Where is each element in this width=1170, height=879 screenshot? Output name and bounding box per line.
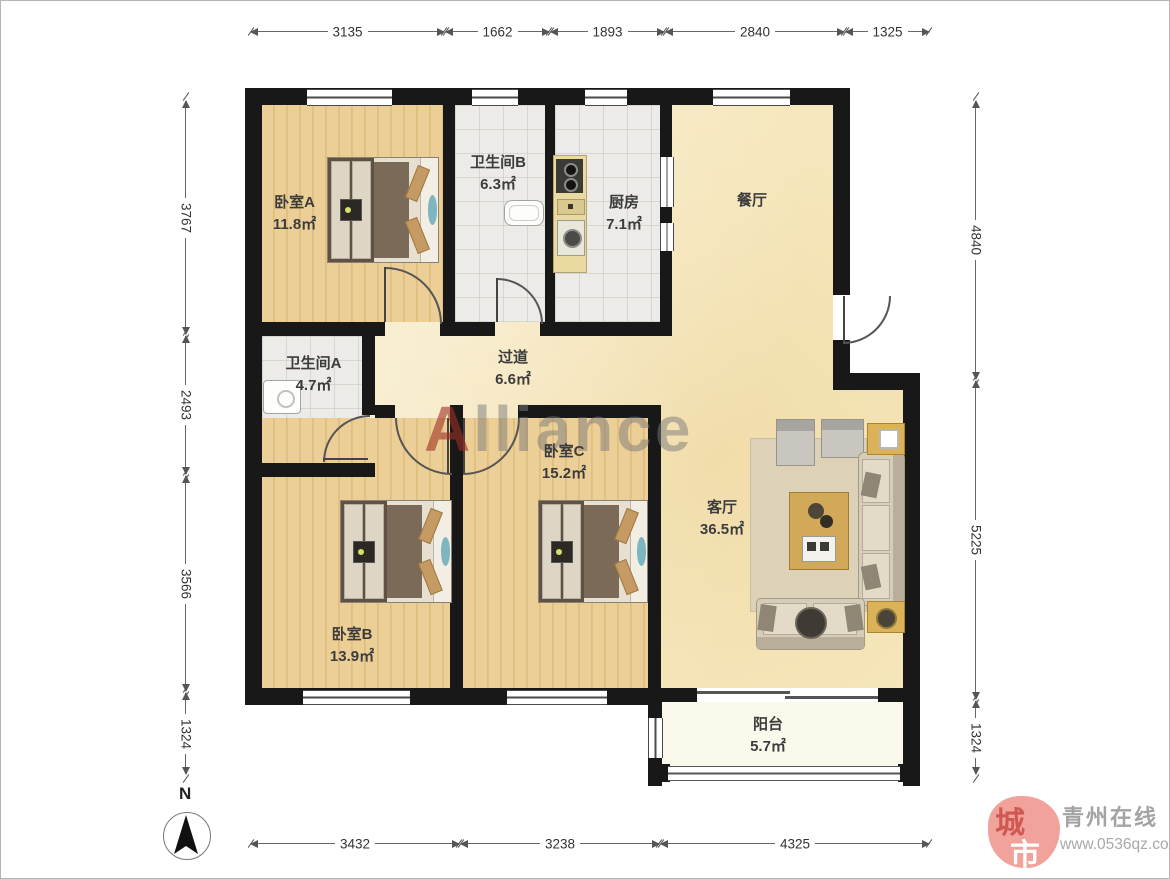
dim-left-2: 2493: [178, 335, 194, 475]
dining-label: 餐厅: [716, 190, 788, 212]
stove-icon: [556, 159, 583, 193]
north-arrow-icon: [164, 813, 208, 857]
window-kitchen: [585, 89, 627, 106]
tv-icon: [353, 541, 375, 563]
bed-mattress: [374, 158, 438, 262]
wall-bedroomB-top-stub: [375, 405, 395, 418]
dim-bottom-3: 4325: [660, 836, 930, 852]
bedroom-a-door-leaf: [384, 267, 386, 322]
window-bedroom-a: [307, 89, 392, 106]
kitchen-slider-glass-1: [660, 157, 674, 207]
compass-circle: [163, 812, 211, 860]
watermark-first-letter: A: [424, 393, 473, 465]
sink-icon: [557, 220, 585, 256]
dim-left-3: 3566: [178, 475, 194, 692]
bathroom-a-door-leaf: [323, 458, 368, 460]
bedroom-a-label: 卧室A11.8㎡: [252, 192, 337, 236]
kitchen-counter: [553, 155, 587, 273]
sofa-main: [858, 452, 905, 606]
coffee-table: [789, 492, 849, 570]
dim-top-4: 2840: [665, 24, 845, 40]
dim-top-3: 1893: [550, 24, 665, 40]
wall-hall-3: [540, 322, 672, 336]
cutting-board: [557, 199, 585, 215]
dim-bottom-1: 3432: [250, 836, 460, 852]
hallway-label: 过道6.6㎡: [478, 347, 548, 391]
floorplan-canvas: 卧室A11.8㎡ 卫生间B6.3㎡ 厨房7.1㎡ 餐厅 卫生间A4.7㎡ 过道6…: [0, 0, 1170, 879]
bathroom-b-tub: [504, 200, 544, 226]
dim-left-4: 1324: [178, 692, 194, 775]
bathroom-a-label: 卫生间A4.7㎡: [266, 353, 361, 397]
wall-kitchen-dining-top: [660, 105, 672, 157]
dim-top-5: 1325: [845, 24, 930, 40]
living-label: 客厅36.5㎡: [682, 497, 762, 541]
dim-top-2: 1662: [445, 24, 550, 40]
wall-right-lower: [903, 373, 920, 786]
wall-balcony-left-top: [648, 702, 662, 718]
loveseat: [756, 598, 865, 650]
bathroom-b-door-leaf: [496, 278, 498, 322]
lamp-icon: [879, 429, 899, 449]
window-bathroom-b: [472, 89, 518, 106]
site-name: 青州在线: [1062, 800, 1158, 832]
dim-right-2: 5225: [968, 380, 984, 700]
wall-balcony-corner-left: [648, 764, 670, 782]
balcony-slider-panel-1: [697, 691, 790, 694]
window-dining: [713, 89, 790, 106]
side-table-plant: [867, 601, 905, 633]
wall-bathroomA-bottom: [245, 463, 375, 477]
window-balcony-left: [648, 718, 663, 758]
bed-mattress: [584, 501, 647, 602]
wall-right-upper: [833, 88, 850, 295]
dim-right-3: 1324: [968, 700, 984, 775]
wall-balcony-top-right: [878, 688, 908, 702]
wardrobe: [539, 501, 584, 602]
tv-icon: [340, 199, 362, 221]
armchair-1: [776, 419, 815, 466]
armchair-2: [821, 419, 864, 458]
entry-door-leaf: [843, 296, 845, 342]
site-seal-icon: 城 市: [988, 796, 1060, 868]
side-table-lamp: [867, 423, 905, 455]
bedroom-c-bed: [538, 500, 648, 603]
plant-icon: [876, 608, 897, 629]
tv-icon: [551, 541, 573, 563]
seal-char-bottom: 市: [1010, 830, 1040, 874]
round-ottoman: [795, 607, 827, 639]
wardrobe: [341, 501, 387, 602]
site-url: www.0536qz.com: [1060, 836, 1170, 854]
kitchen-slider-glass-2: [660, 223, 674, 251]
wall-bathroomA-right: [362, 322, 375, 415]
bedroom-b-label: 卧室B13.9㎡: [312, 624, 392, 668]
bedroom-b-bed: [340, 500, 452, 603]
dim-bottom-2: 3238: [460, 836, 660, 852]
compass-north-label: N: [179, 784, 191, 804]
bed-mattress: [387, 501, 451, 602]
wall-hall-2: [440, 322, 495, 336]
wall-balcony-corner-right: [898, 764, 920, 782]
bedroom-a-bed: [327, 157, 439, 263]
dim-right-1: 4840: [968, 100, 984, 380]
bathroom-b-label: 卫生间B6.3㎡: [452, 152, 544, 196]
window-balcony-front: [668, 766, 900, 781]
wall-left: [245, 88, 262, 705]
dim-left-1: 3767: [178, 100, 194, 335]
balcony-slider-panel-2: [785, 696, 878, 699]
wall-kitchen-dining-stub: [660, 207, 672, 223]
wall-bedroomA-bathroomB: [443, 105, 455, 322]
dim-top-1: 3135: [250, 24, 445, 40]
wall-balcony-top-left: [648, 688, 697, 702]
bedroom-c-label: 卧室C15.2㎡: [524, 441, 604, 485]
balcony-label: 阳台5.7㎡: [728, 714, 808, 758]
window-bedroom-b: [303, 690, 410, 705]
wall-kitchen-dining-bottom: [660, 251, 672, 322]
window-bedroom-c: [507, 690, 607, 705]
kitchen-label: 厨房7.1㎡: [588, 192, 660, 236]
